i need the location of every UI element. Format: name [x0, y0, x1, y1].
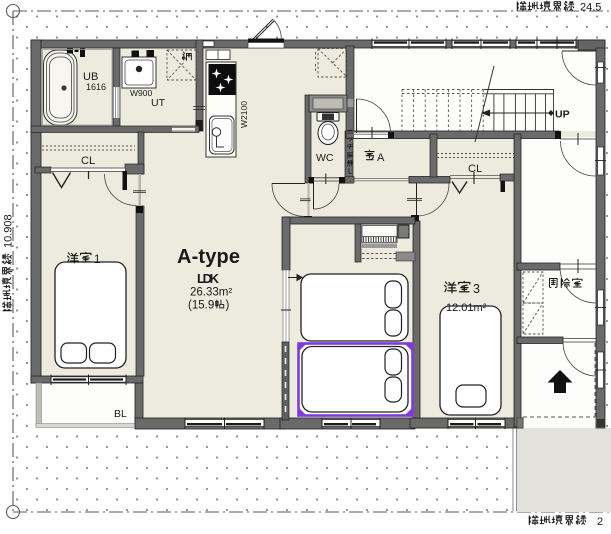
- svg-text:UT: UT: [151, 97, 166, 109]
- svg-text:1: 1: [94, 254, 100, 266]
- svg-text:CL: CL: [81, 155, 95, 167]
- svg-text:UP: UP: [555, 109, 570, 121]
- svg-text:2: 2: [597, 516, 603, 528]
- svg-text:W2100: W2100: [239, 101, 249, 128]
- svg-text:26.33m²: 26.33m²: [190, 287, 232, 299]
- svg-text:A-type: A-type: [177, 246, 240, 268]
- svg-text:10.908: 10.908: [3, 214, 15, 248]
- svg-text:): ): [226, 300, 230, 312]
- svg-text:CL: CL: [468, 163, 482, 175]
- svg-text:24.5: 24.5: [580, 2, 601, 14]
- svg-text:LDK: LDK: [197, 271, 220, 286]
- svg-text:A: A: [377, 152, 385, 164]
- svg-text:3: 3: [473, 282, 480, 296]
- svg-text:1616: 1616: [86, 82, 106, 92]
- svg-text:WC: WC: [316, 152, 334, 164]
- svg-text:W900: W900: [130, 88, 152, 98]
- svg-text:BL: BL: [114, 408, 127, 420]
- svg-text:(15.9: (15.9: [188, 300, 214, 312]
- svg-text:12.01m²: 12.01m²: [446, 302, 487, 314]
